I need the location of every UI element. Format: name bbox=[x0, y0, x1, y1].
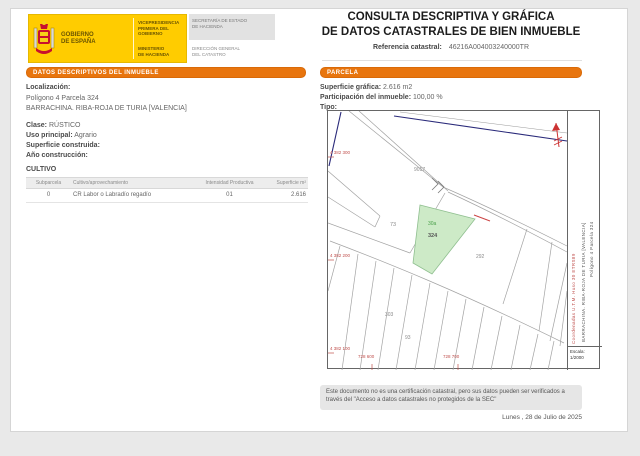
referencia-label: Referencia catastral: bbox=[373, 44, 442, 51]
map-side-red-text: Coordenadas U.T.M. Huso 30 ETRS89 bbox=[571, 166, 576, 344]
col-cultivo: Cultivo/aprovechamiento bbox=[71, 178, 196, 189]
localizacion-line2: BARRACHINA. RIBA-ROJA DE TURIA [VALENCIA… bbox=[26, 105, 187, 112]
map-side-strip: Coordenadas U.T.M. Huso 30 ETRS89 BARRAC… bbox=[567, 111, 601, 370]
participacion-row: Participación del inmueble: 100,00 % bbox=[320, 94, 443, 101]
col-subparcela: Subparcela bbox=[26, 178, 71, 189]
ano-construccion-row: Año construcción: bbox=[26, 152, 88, 159]
cell-intensidad: 01 bbox=[196, 189, 263, 203]
cell-subparcela: 0 bbox=[26, 189, 71, 203]
parcel-label-324: 324 bbox=[428, 233, 438, 239]
uso-row: Uso principal: Agrario bbox=[26, 132, 97, 139]
cell-cultivo: CR Labor o Labradío regadío bbox=[71, 189, 196, 203]
cultivo-title: CULTIVO bbox=[26, 166, 56, 173]
spain-coat-of-arms-icon bbox=[29, 15, 59, 62]
title-line2: DE DATOS CATASTRALES DE BIEN INMUEBLE bbox=[318, 25, 584, 40]
title-separator bbox=[322, 60, 582, 61]
participacion-label: Participación del inmueble: bbox=[320, 94, 411, 101]
cultivo-table-row: 0 CR Labor o Labradío regadío 01 2.616 bbox=[26, 189, 308, 203]
map-side-text-location: BARRACHINA. RIBA-ROJA DE TURIA [VALENCIA… bbox=[581, 117, 586, 342]
gobierno-line2: DE ESPAÑA bbox=[61, 39, 131, 46]
parcel-label-73: 73 bbox=[390, 222, 396, 228]
gobierno-espana-logo: GOBIERNO DE ESPAÑA VICEPRESIDENCIA PRIME… bbox=[28, 14, 187, 63]
parcel-label-303: 303 bbox=[385, 312, 394, 318]
subparcel-label-30a: 30a bbox=[428, 221, 437, 227]
utm-y-label-1: 4 382 300 bbox=[330, 150, 351, 155]
cell-superficie: 2.616 bbox=[263, 189, 308, 203]
clase-label: Clase: bbox=[26, 122, 47, 129]
col-intensidad: Intensidad Productiva bbox=[196, 178, 263, 189]
parcel-label-93: 93 bbox=[405, 335, 411, 341]
gobierno-line1: GOBIERNO bbox=[61, 32, 131, 39]
referencia-catastral: Referencia catastral: 46216A004003240000… bbox=[318, 44, 584, 51]
ano-construccion-label: Año construcción: bbox=[26, 152, 88, 159]
superficie-construida-label: Superficie construida: bbox=[26, 142, 100, 149]
superficie-grafica-label: Superficie gráfica: bbox=[320, 84, 381, 91]
utm-x-label-2: 728 700 bbox=[443, 354, 460, 359]
disclaimer-note: Este documento no es una certificación c… bbox=[320, 385, 582, 410]
superficie-construida-row: Superficie construida: bbox=[26, 142, 100, 149]
col-superficie: Superficie m² bbox=[263, 178, 308, 189]
scale-value: 1/2000 bbox=[570, 355, 584, 360]
north-arrow-icon bbox=[552, 123, 562, 147]
highlighted-parcel-324 bbox=[413, 205, 475, 274]
gobierno-text: GOBIERNO DE ESPAÑA bbox=[59, 15, 131, 62]
section-header-datos-descriptivos: DATOS DESCRIPTIVOS DEL INMUEBLE bbox=[26, 67, 306, 78]
referencia-value: 46216A004003240000TR bbox=[449, 44, 529, 51]
superficie-grafica-row: Superficie gráfica: 2.616 m2 bbox=[320, 84, 412, 91]
direccion-general-text: DIRECCIÓN GENERAL DEL CATASTRO bbox=[189, 44, 275, 59]
document-title: CONSULTA DESCRIPTIVA Y GRÁFICA DE DATOS … bbox=[318, 10, 584, 51]
localizacion-line1: Polígono 4 Parcela 324 bbox=[26, 95, 99, 102]
scale-label: Escala: bbox=[570, 349, 585, 354]
utm-y-label-2: 4 382 200 bbox=[330, 253, 351, 258]
vicepresidencia-text: VICEPRESIDENCIA PRIMERA DEL GOBIERNO bbox=[138, 20, 184, 37]
ministerio-text: MINISTERIO DE HACIENDA bbox=[138, 46, 184, 57]
utm-x-label-1: 728 600 bbox=[358, 354, 375, 359]
map-side-text-parcel: Polígono 4 Parcela 324 bbox=[589, 117, 594, 277]
superficie-grafica-value: 2.616 m2 bbox=[383, 84, 412, 91]
parcel-label-292: 292 bbox=[476, 254, 485, 260]
participacion-value: 100,00 % bbox=[413, 94, 443, 101]
secretaria-estado-text: SECRETARÍA DE ESTADO DE HACIENDA bbox=[189, 14, 275, 40]
utm-y-label-3: 4 382 100 bbox=[330, 346, 351, 351]
navy-line-top-right bbox=[394, 116, 567, 141]
title-line1: CONSULTA DESCRIPTIVA Y GRÁFICA bbox=[318, 10, 584, 25]
cadastral-map-drawing: 9017 73 30a 324 292 303 93 4 382 300 4 3… bbox=[328, 111, 601, 370]
localizacion-label: Localización: bbox=[26, 84, 70, 91]
cadastral-map-panel: 9017 73 30a 324 292 303 93 4 382 300 4 3… bbox=[327, 110, 600, 369]
navy-line-top-left bbox=[329, 112, 341, 166]
scale-box: Escala: 1/2000 bbox=[568, 346, 602, 370]
clase-row: Clase: RÚSTICO bbox=[26, 122, 80, 129]
uso-label: Uso principal: bbox=[26, 132, 73, 139]
cultivo-table: Subparcela Cultivo/aprovechamiento Inten… bbox=[26, 177, 308, 203]
uso-value: Agrario bbox=[74, 132, 97, 139]
logo-divider bbox=[133, 18, 134, 59]
cultivo-table-header-row: Subparcela Cultivo/aprovechamiento Inten… bbox=[26, 178, 308, 189]
document-date: Lunes , 28 de Julio de 2025 bbox=[390, 414, 582, 421]
section-header-parcela: PARCELA bbox=[320, 67, 582, 78]
road-label: 9017 bbox=[414, 167, 425, 173]
clase-value: RÚSTICO bbox=[49, 122, 81, 129]
